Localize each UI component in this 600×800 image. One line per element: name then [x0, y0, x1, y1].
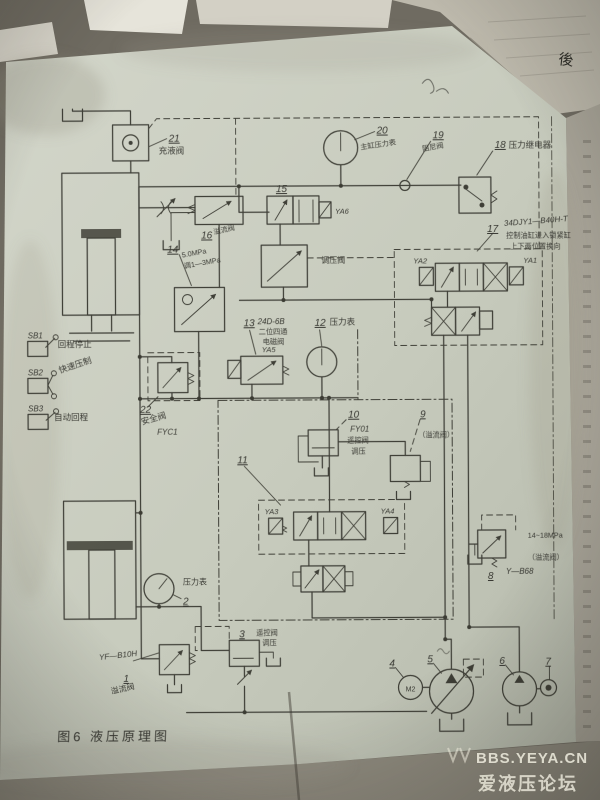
watermark-line2: 爱液压论坛	[478, 773, 578, 794]
photo-of-hydraulic-schematic: 21 充液阀 20 主缸压力表 19 阻尼阀 18 压力继电器 15 YA6 调…	[0, 0, 600, 800]
photo-vignette	[0, 0, 600, 800]
watermark-line1: BBS.YEYA.CN	[476, 750, 588, 767]
